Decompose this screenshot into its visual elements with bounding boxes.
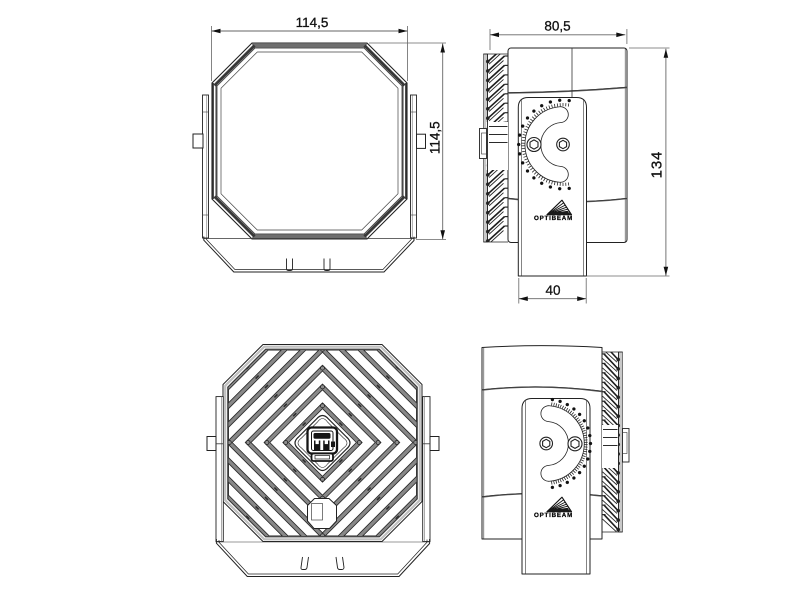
svg-text:114,5: 114,5 xyxy=(428,121,443,154)
svg-text:80,5: 80,5 xyxy=(544,18,570,33)
svg-text:40: 40 xyxy=(545,283,560,298)
svg-text:OPTIBEAM: OPTIBEAM xyxy=(534,512,573,519)
svg-text:134: 134 xyxy=(649,151,666,178)
svg-text:OPTIBEAM: OPTIBEAM xyxy=(534,215,573,222)
svg-text:114,5: 114,5 xyxy=(296,15,329,30)
